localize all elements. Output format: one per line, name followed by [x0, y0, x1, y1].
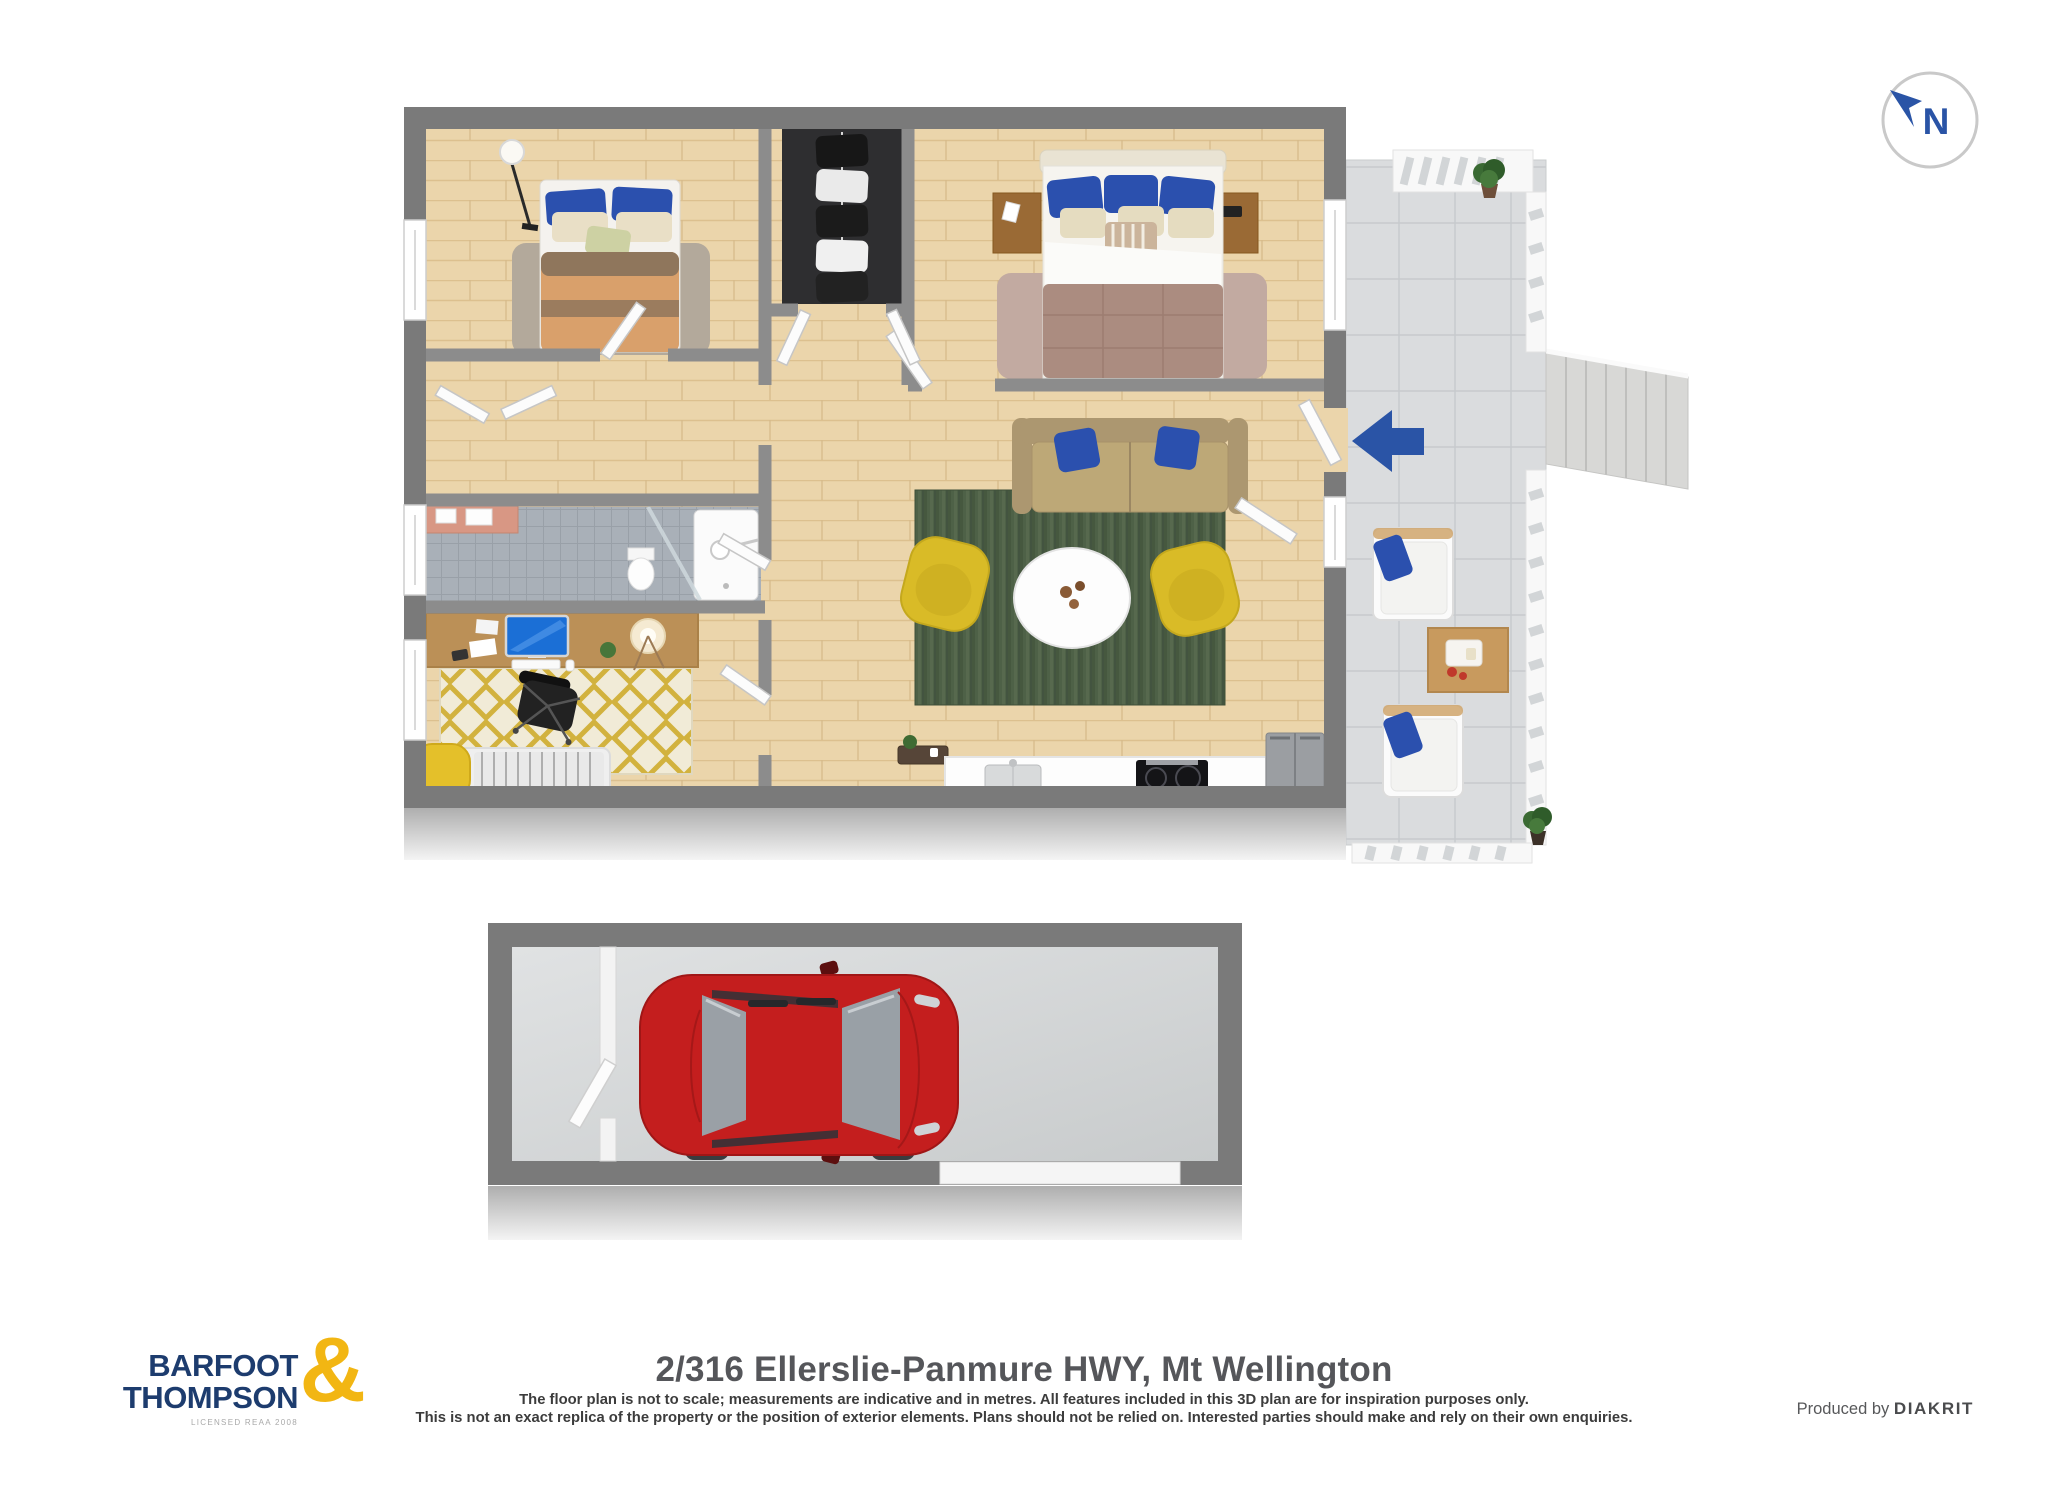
floor-plan-graphic: N	[0, 0, 2048, 1494]
produced-by: Produced by DIAKRIT	[1797, 1399, 1974, 1419]
produced-by-prefix: Produced by	[1797, 1400, 1890, 1418]
garage-wall-face	[488, 1186, 1242, 1240]
produced-by-brand: DIAKRIT	[1894, 1399, 1974, 1418]
computer	[506, 616, 568, 658]
garage	[488, 935, 1242, 1240]
garage-partition-top	[600, 947, 616, 1065]
sofa	[1012, 418, 1248, 514]
master-bed	[1040, 150, 1226, 378]
wardrobe	[815, 132, 869, 303]
outdoor-table	[1428, 628, 1508, 692]
wall-face-bottom	[404, 808, 1346, 860]
office	[414, 613, 698, 798]
deck-railing-bottom	[1352, 843, 1532, 863]
toilet	[628, 548, 654, 590]
deck-railing-right	[1526, 192, 1546, 845]
coffee-table	[1014, 548, 1130, 648]
apartment	[404, 118, 1348, 860]
disclaimer-line1: The floor plan is not to scale; measurem…	[0, 1392, 2048, 1408]
nightstand-left	[993, 193, 1041, 253]
compass-label: N	[1923, 101, 1950, 142]
desk	[426, 613, 698, 671]
floor-plan-page: N BARFOOT THOMPSON & LICENSED REAA 2008 …	[0, 0, 2048, 1494]
stairs	[1546, 351, 1688, 489]
outdoor-chair-1	[1372, 528, 1453, 620]
deck	[1346, 150, 1688, 863]
disclaimer-line2: This is not an exact replica of the prop…	[0, 1410, 2048, 1426]
bedroom2-bed	[540, 180, 680, 352]
property-address: 2/316 Ellerslie-Panmure HWY, Mt Wellingt…	[0, 1350, 2048, 1390]
deck-railing-top	[1393, 150, 1533, 192]
vanity	[426, 505, 518, 533]
compass-icon: N	[1883, 73, 1977, 167]
car	[640, 960, 958, 1165]
outdoor-chair-2	[1382, 705, 1463, 797]
garage-door	[940, 1162, 1180, 1184]
garage-partition-bottom	[600, 1118, 616, 1161]
